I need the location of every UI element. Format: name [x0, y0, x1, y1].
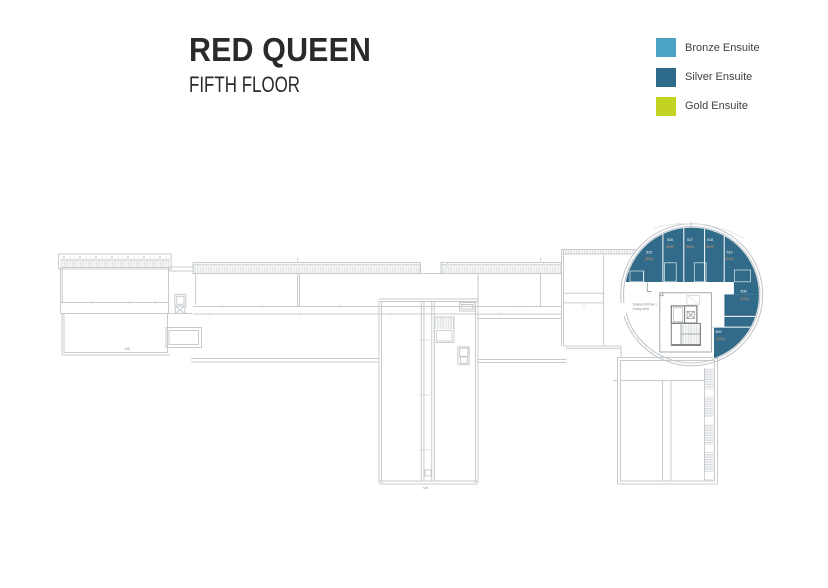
svg-text:516: 516 [667, 238, 673, 242]
svg-text:509: 509 [716, 330, 722, 334]
svg-text:508: 508 [741, 290, 747, 294]
svg-text:517: 517 [687, 238, 693, 242]
svg-text:519: 519 [727, 251, 733, 255]
svg-text:(B06): (B06) [686, 245, 695, 249]
svg-text:515: 515 [646, 251, 652, 255]
svg-text:MS: MS [125, 347, 130, 351]
svg-text:(B06): (B06) [706, 245, 715, 249]
svg-text:Shared Kitchen /: Shared Kitchen / [633, 302, 657, 306]
svg-text:(B04): (B04) [740, 297, 749, 301]
svg-text:(B04): (B04) [716, 337, 725, 341]
svg-text:(B05): (B05) [645, 257, 654, 261]
svg-text:Living Area: Living Area [633, 307, 649, 311]
svg-text:(B06): (B06) [666, 245, 675, 249]
svg-text:525: 525 [423, 486, 428, 490]
svg-text:(B05): (B05) [725, 257, 734, 261]
svg-text:518: 518 [707, 238, 713, 242]
